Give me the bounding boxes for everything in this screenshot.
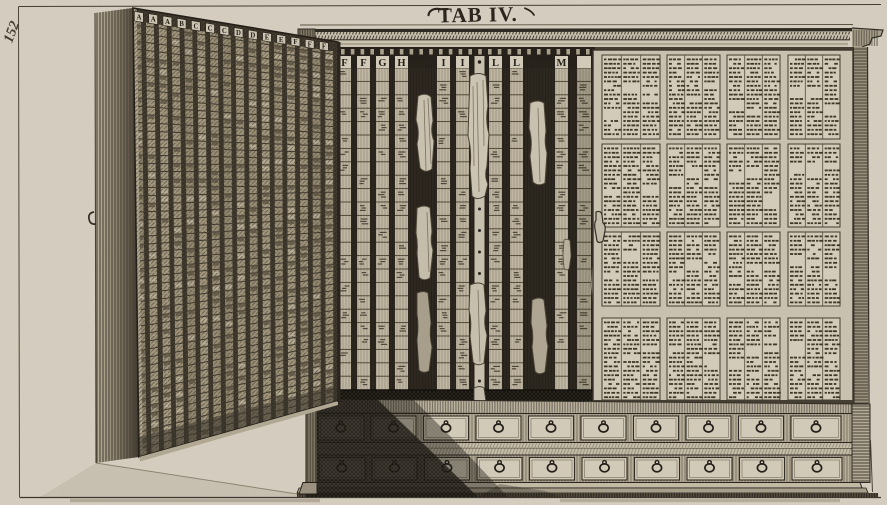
svg-text:A: A [151, 17, 156, 24]
svg-text:E: E [265, 35, 270, 42]
svg-text:TAB IV.: TAB IV. [438, 2, 518, 28]
svg-text:F: F [308, 41, 312, 48]
svg-text:A: A [136, 14, 141, 21]
svg-text:L: L [513, 58, 520, 69]
svg-text:I: I [441, 58, 445, 69]
svg-text:G: G [378, 58, 386, 69]
svg-text:C: C [222, 28, 227, 35]
svg-text:F: F [360, 58, 366, 69]
svg-text:L: L [492, 58, 499, 69]
svg-text:C: C [208, 26, 213, 33]
svg-text:E: E [279, 37, 284, 44]
svg-text:F: F [293, 39, 297, 46]
svg-text:D: D [236, 30, 241, 37]
svg-text:A: A [165, 19, 170, 26]
svg-text:F: F [322, 44, 326, 51]
svg-text:F: F [341, 58, 347, 69]
svg-text:M: M [557, 58, 567, 69]
svg-text:H: H [397, 58, 405, 69]
svg-text:D: D [250, 32, 255, 39]
svg-text:I: I [460, 58, 464, 69]
svg-text:C: C [193, 23, 198, 30]
svg-text:B: B [179, 21, 184, 28]
